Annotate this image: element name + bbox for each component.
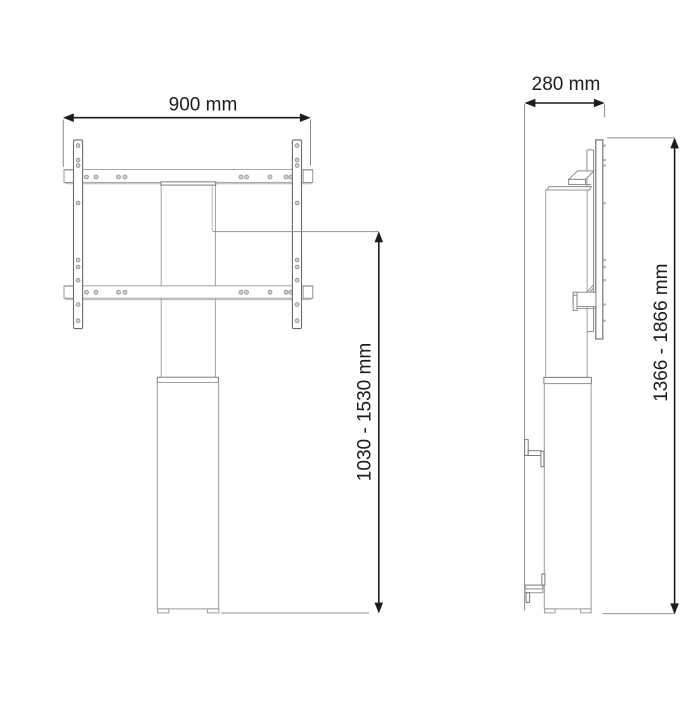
svg-text:900 mm: 900 mm: [169, 95, 238, 116]
svg-text:1366 - 1866 mm: 1366 - 1866 mm: [651, 264, 672, 402]
svg-text:280 mm: 280 mm: [532, 74, 601, 95]
svg-text:1030 - 1530 mm: 1030 - 1530 mm: [355, 343, 376, 481]
